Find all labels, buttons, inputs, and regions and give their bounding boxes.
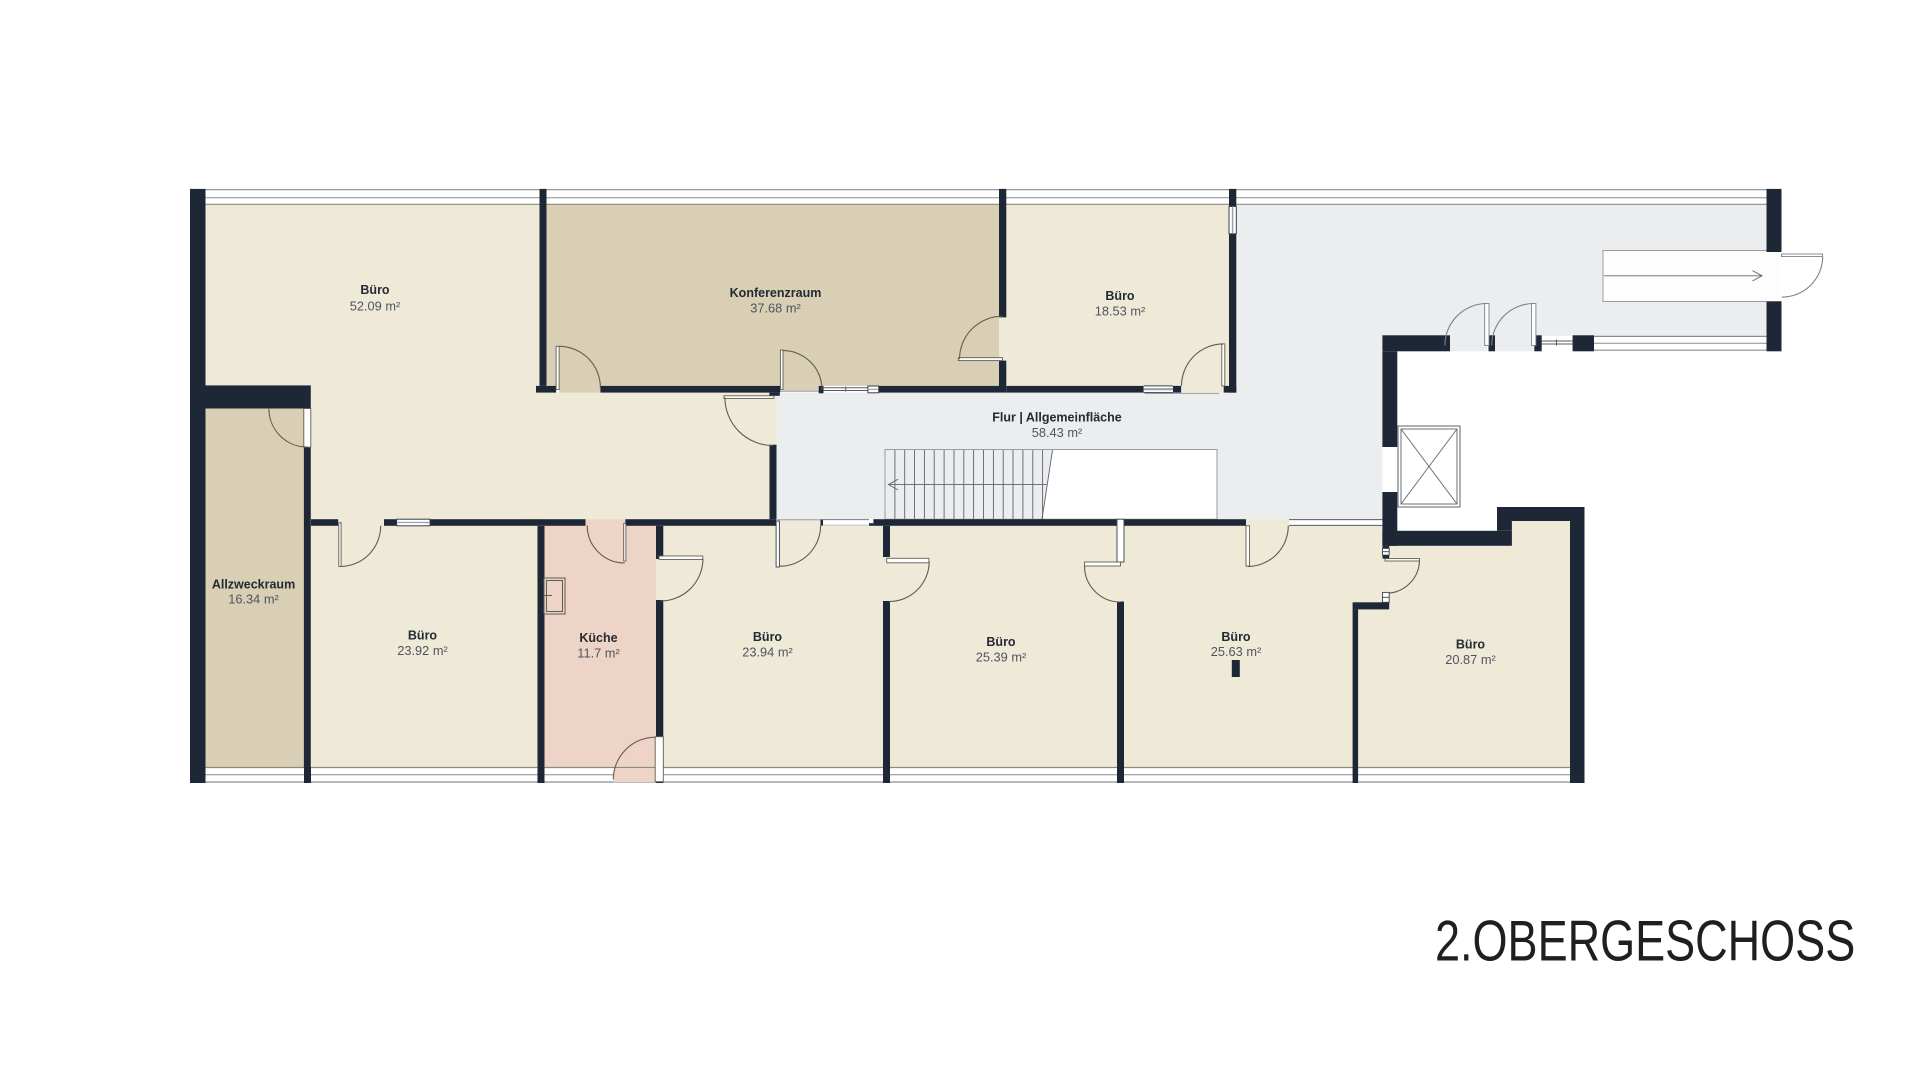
svg-text:2.OBERGESCHOSS: 2.OBERGESCHOSS: [1435, 908, 1855, 973]
svg-text:23.92 m²: 23.92 m²: [397, 643, 448, 658]
svg-text:25.63 m²: 25.63 m²: [1211, 644, 1262, 659]
svg-text:Küche: Küche: [579, 631, 617, 645]
svg-text:Büro: Büro: [360, 283, 390, 297]
svg-text:Flur | Allgemeinfläche: Flur | Allgemeinfläche: [992, 411, 1121, 425]
svg-text:Konferenzraum: Konferenzraum: [730, 286, 822, 300]
svg-text:18.53 m²: 18.53 m²: [1095, 304, 1146, 319]
svg-text:25.39 m²: 25.39 m²: [976, 649, 1027, 664]
svg-text:Büro: Büro: [986, 635, 1016, 649]
svg-text:11.7 m²: 11.7 m²: [577, 645, 620, 660]
svg-text:Büro: Büro: [1456, 638, 1486, 652]
svg-text:Büro: Büro: [1105, 289, 1135, 303]
svg-text:58.43 m²: 58.43 m²: [1032, 425, 1083, 440]
svg-text:20.87 m²: 20.87 m²: [1445, 652, 1496, 667]
svg-text:Büro: Büro: [753, 630, 783, 644]
svg-text:23.94 m²: 23.94 m²: [742, 644, 793, 659]
svg-text:52.09 m²: 52.09 m²: [350, 299, 401, 314]
svg-text:37.68 m²: 37.68 m²: [750, 301, 801, 316]
svg-text:Allzweckraum: Allzweckraum: [212, 577, 295, 591]
svg-text:Büro: Büro: [408, 629, 438, 643]
svg-text:Büro: Büro: [1221, 630, 1251, 644]
svg-text:16.34 m²: 16.34 m²: [228, 591, 279, 606]
